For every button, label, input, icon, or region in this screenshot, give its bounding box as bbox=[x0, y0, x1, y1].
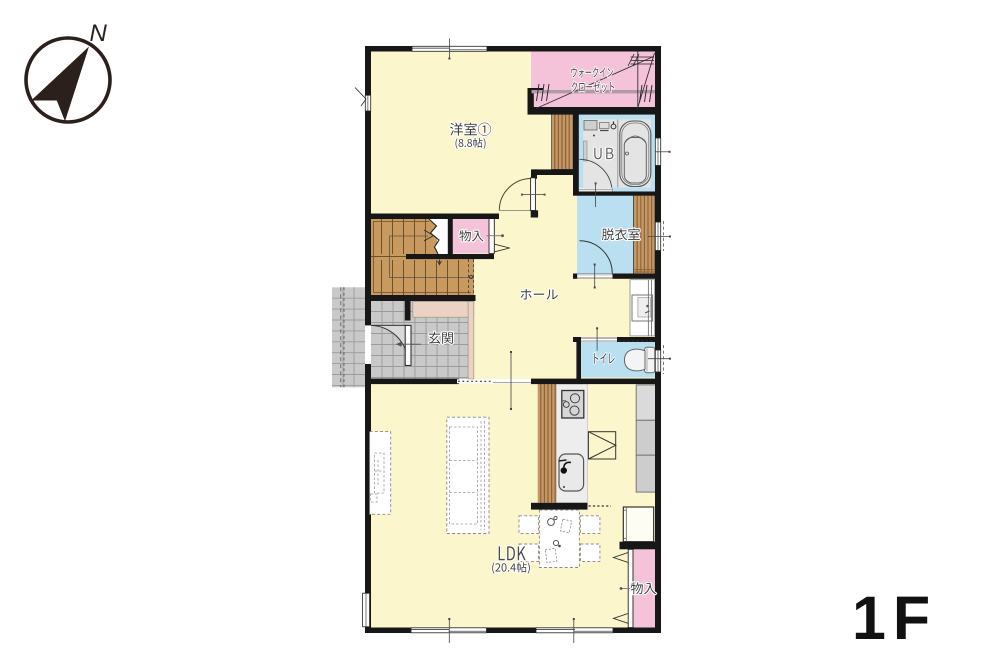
svg-text:1F: 1F bbox=[852, 584, 937, 652]
svg-text:N: N bbox=[90, 20, 108, 47]
